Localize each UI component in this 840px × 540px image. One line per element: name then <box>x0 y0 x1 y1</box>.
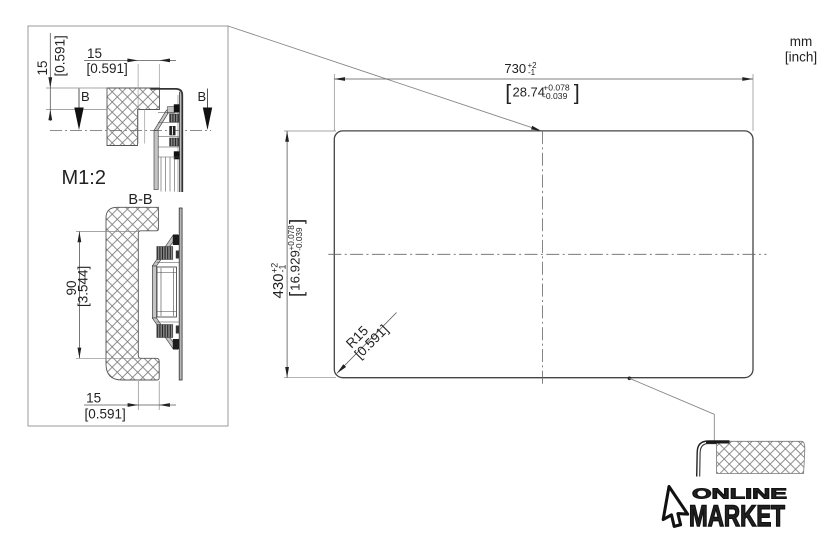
svg-text:]: ] <box>285 219 306 224</box>
svg-text:-0.039: -0.039 <box>295 227 304 251</box>
svg-text:M1:2: M1:2 <box>62 167 106 189</box>
svg-text:[inch]: [inch] <box>785 50 817 65</box>
svg-text:[0.591]: [0.591] <box>53 35 68 76</box>
svg-text:MARKET: MARKET <box>689 500 785 533</box>
svg-text:16.929: 16.929 <box>287 250 302 291</box>
svg-text:-0.039: -0.039 <box>543 91 568 101</box>
svg-text:[0.591]: [0.591] <box>87 61 128 76</box>
svg-text:mm: mm <box>790 34 813 49</box>
svg-text:[3.544]: [3.544] <box>76 266 91 307</box>
svg-text:[: [ <box>505 80 511 104</box>
svg-text:B: B <box>198 89 207 104</box>
svg-text:15: 15 <box>86 391 101 406</box>
svg-text:28.74: 28.74 <box>513 84 546 99</box>
svg-text:730: 730 <box>504 61 526 76</box>
svg-text:[0.591]: [0.591] <box>85 407 126 422</box>
svg-text:15: 15 <box>35 60 50 75</box>
svg-text:B-B: B-B <box>128 192 152 208</box>
svg-text:]: ] <box>574 80 580 104</box>
svg-text:B: B <box>81 89 90 104</box>
svg-text:[: [ <box>285 292 306 297</box>
svg-text:-1: -1 <box>277 264 287 272</box>
svg-text:-1: -1 <box>528 68 536 77</box>
svg-text:15: 15 <box>87 46 102 61</box>
